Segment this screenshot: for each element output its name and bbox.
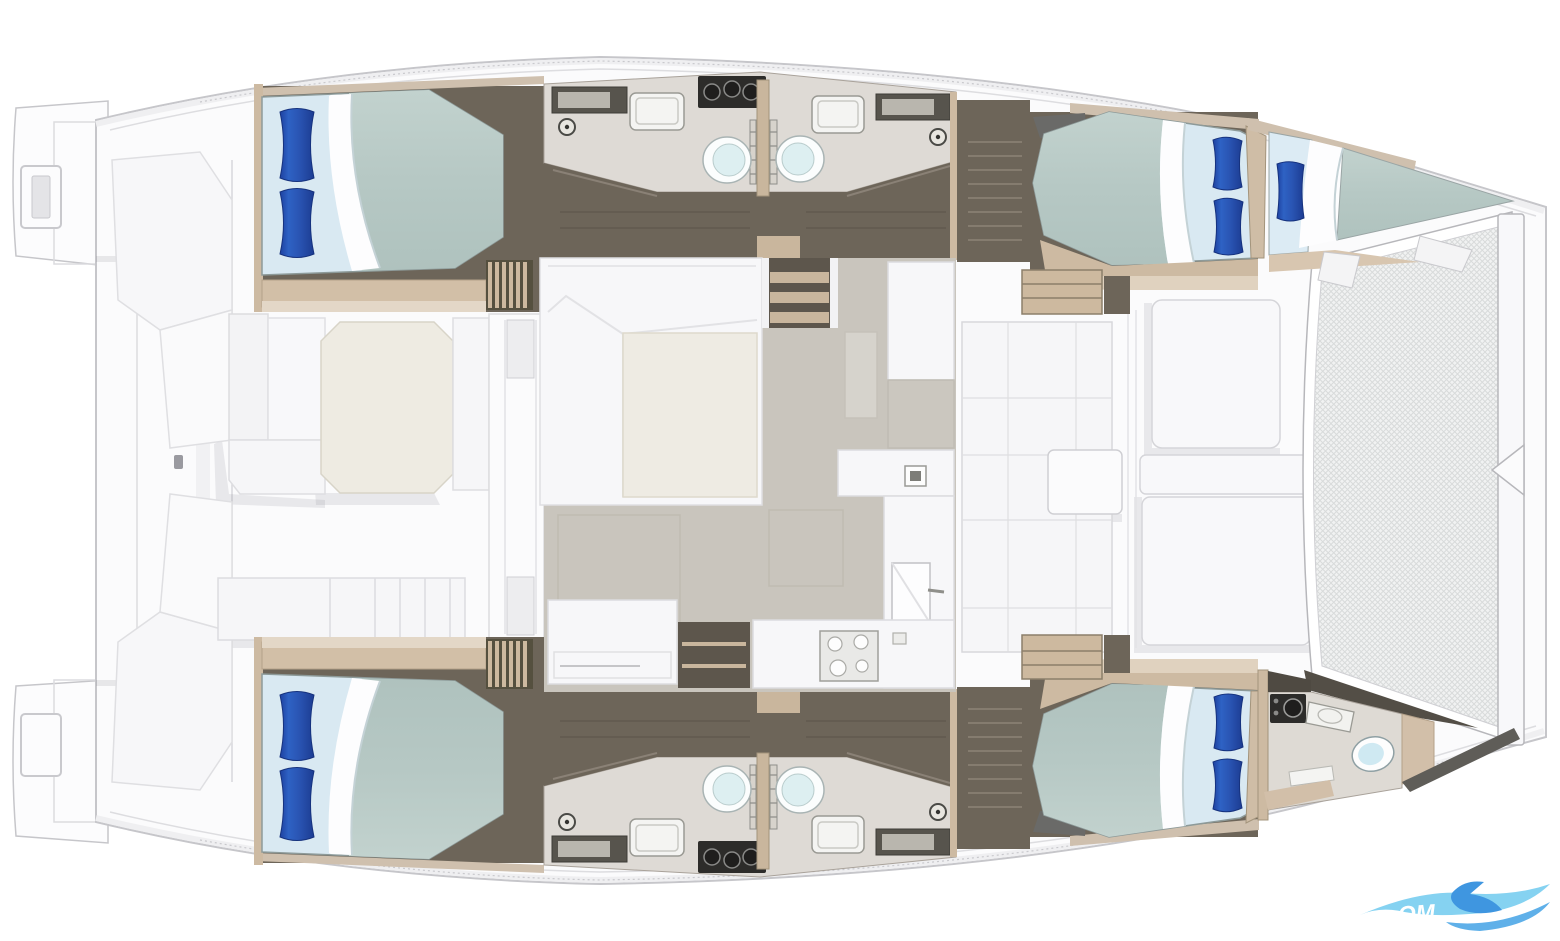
svg-text:OM: OM (1397, 899, 1437, 928)
